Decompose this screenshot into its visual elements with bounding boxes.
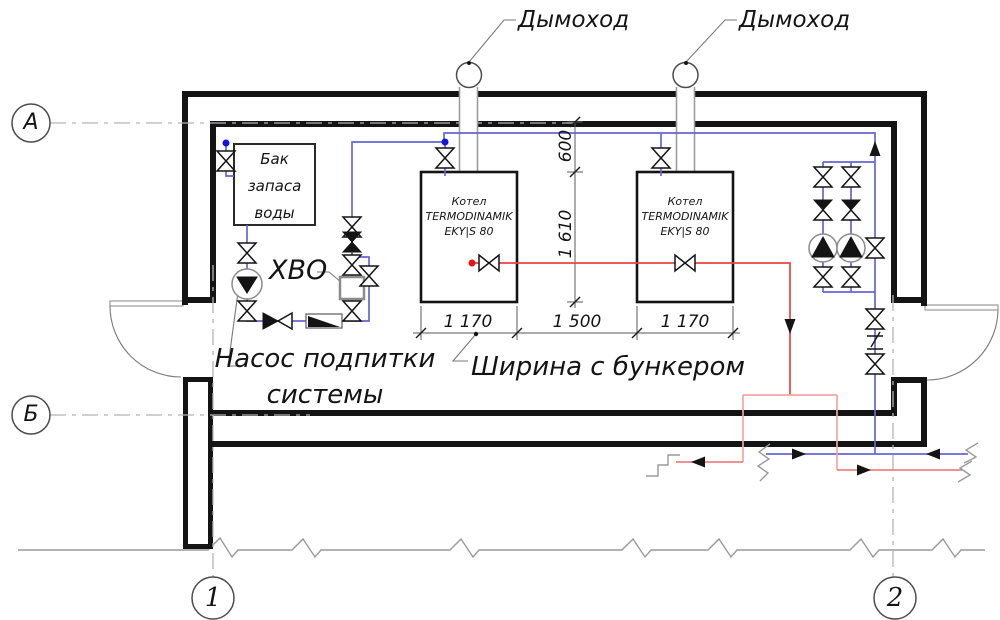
chimney-label-1: Дымоход: [518, 7, 629, 33]
valve: [814, 167, 832, 187]
valve: [217, 151, 235, 171]
bypass-valve: [866, 238, 884, 258]
boiler1-feed-valve: [436, 148, 454, 168]
dimension-width-right: 1 170: [645, 312, 725, 332]
tank-label-line2: запаса: [234, 173, 315, 200]
check-valve-horizontal: [263, 313, 292, 329]
plan-linework: [0, 0, 1000, 620]
boiler1-label-line1: Котел: [421, 194, 517, 209]
strainer: [306, 314, 342, 328]
boiler2-label-line3: EKY|S 80: [637, 224, 733, 239]
dimension-width-middle: 1 500: [537, 312, 617, 332]
water-supply-point: [223, 140, 230, 147]
boiler-room-plan: Дымоход Дымоход А Б 1 2 Бак запаса воды …: [0, 0, 1000, 620]
check-valve: [814, 200, 832, 220]
water-supply-point: [442, 139, 449, 146]
hvo-label: ХВО: [269, 255, 327, 286]
door-right: [925, 305, 998, 380]
chimney-cap-icon: [457, 63, 482, 88]
valve: [343, 255, 361, 275]
dimension-top-offset: 600: [556, 118, 576, 174]
valve: [238, 301, 256, 321]
axis-marker-1: 1: [192, 578, 234, 618]
width-note-label: Ширина с бункером: [471, 352, 745, 382]
boiler2-label-line2: TERMODINAMIK: [637, 209, 733, 224]
flow-arrow-down: [785, 319, 796, 334]
boiler2-feed-valve: [652, 148, 670, 168]
check-valve: [842, 200, 860, 220]
circulation-pump-1: [809, 234, 837, 262]
boiler-outlet-point: [469, 260, 476, 267]
axis-marker-2: 2: [874, 578, 916, 618]
flow-arrow-right: [792, 449, 806, 460]
flow-arrow-left: [926, 449, 940, 460]
makeup-pump-label-line2: системы: [192, 377, 458, 413]
valve: [866, 354, 884, 374]
makeup-pump-label-line1: Насос подпитки: [192, 341, 458, 377]
hvo-unit: [340, 277, 364, 299]
dimension-boiler-height: 1 610: [556, 202, 576, 266]
boiler2-label: Котел TERMODINAMIK EKY|S 80: [637, 194, 733, 239]
door-left: [110, 301, 183, 377]
valve: [866, 309, 884, 329]
check-valve: [343, 232, 361, 252]
chimney-1: [457, 63, 482, 174]
axis-marker-a: А: [12, 105, 50, 141]
valve: [842, 267, 860, 287]
chimney-2: [673, 63, 698, 174]
makeup-pump: [232, 269, 262, 299]
chimney-cap-icon: [673, 63, 698, 88]
makeup-pump-label: Насос подпитки системы: [192, 341, 458, 413]
valve: [842, 167, 860, 187]
boiler1-label-line2: TERMODINAMIK: [421, 209, 517, 224]
flow-arrow-left: [691, 457, 705, 468]
flow-arrow-right: [857, 465, 871, 476]
boiler1-label: Котел TERMODINAMIK EKY|S 80: [421, 194, 517, 239]
ground-break-line: [18, 538, 985, 557]
tank-label-line1: Бак: [234, 146, 315, 173]
flow-arrow-up: [870, 141, 881, 156]
axis-marker-b: Б: [12, 397, 50, 433]
circulation-pump-2: [837, 234, 865, 262]
valve: [814, 267, 832, 287]
dimension-width-left: 1 170: [428, 312, 508, 332]
valve: [343, 301, 361, 321]
tank-label: Бак запаса воды: [234, 146, 315, 227]
boiler1-label-line3: EKY|S 80: [421, 224, 517, 239]
chimney-label-2: Дымоход: [739, 7, 850, 33]
boiler2-label-line1: Котел: [637, 194, 733, 209]
valve: [238, 243, 256, 263]
tank-label-line3: воды: [234, 200, 315, 227]
